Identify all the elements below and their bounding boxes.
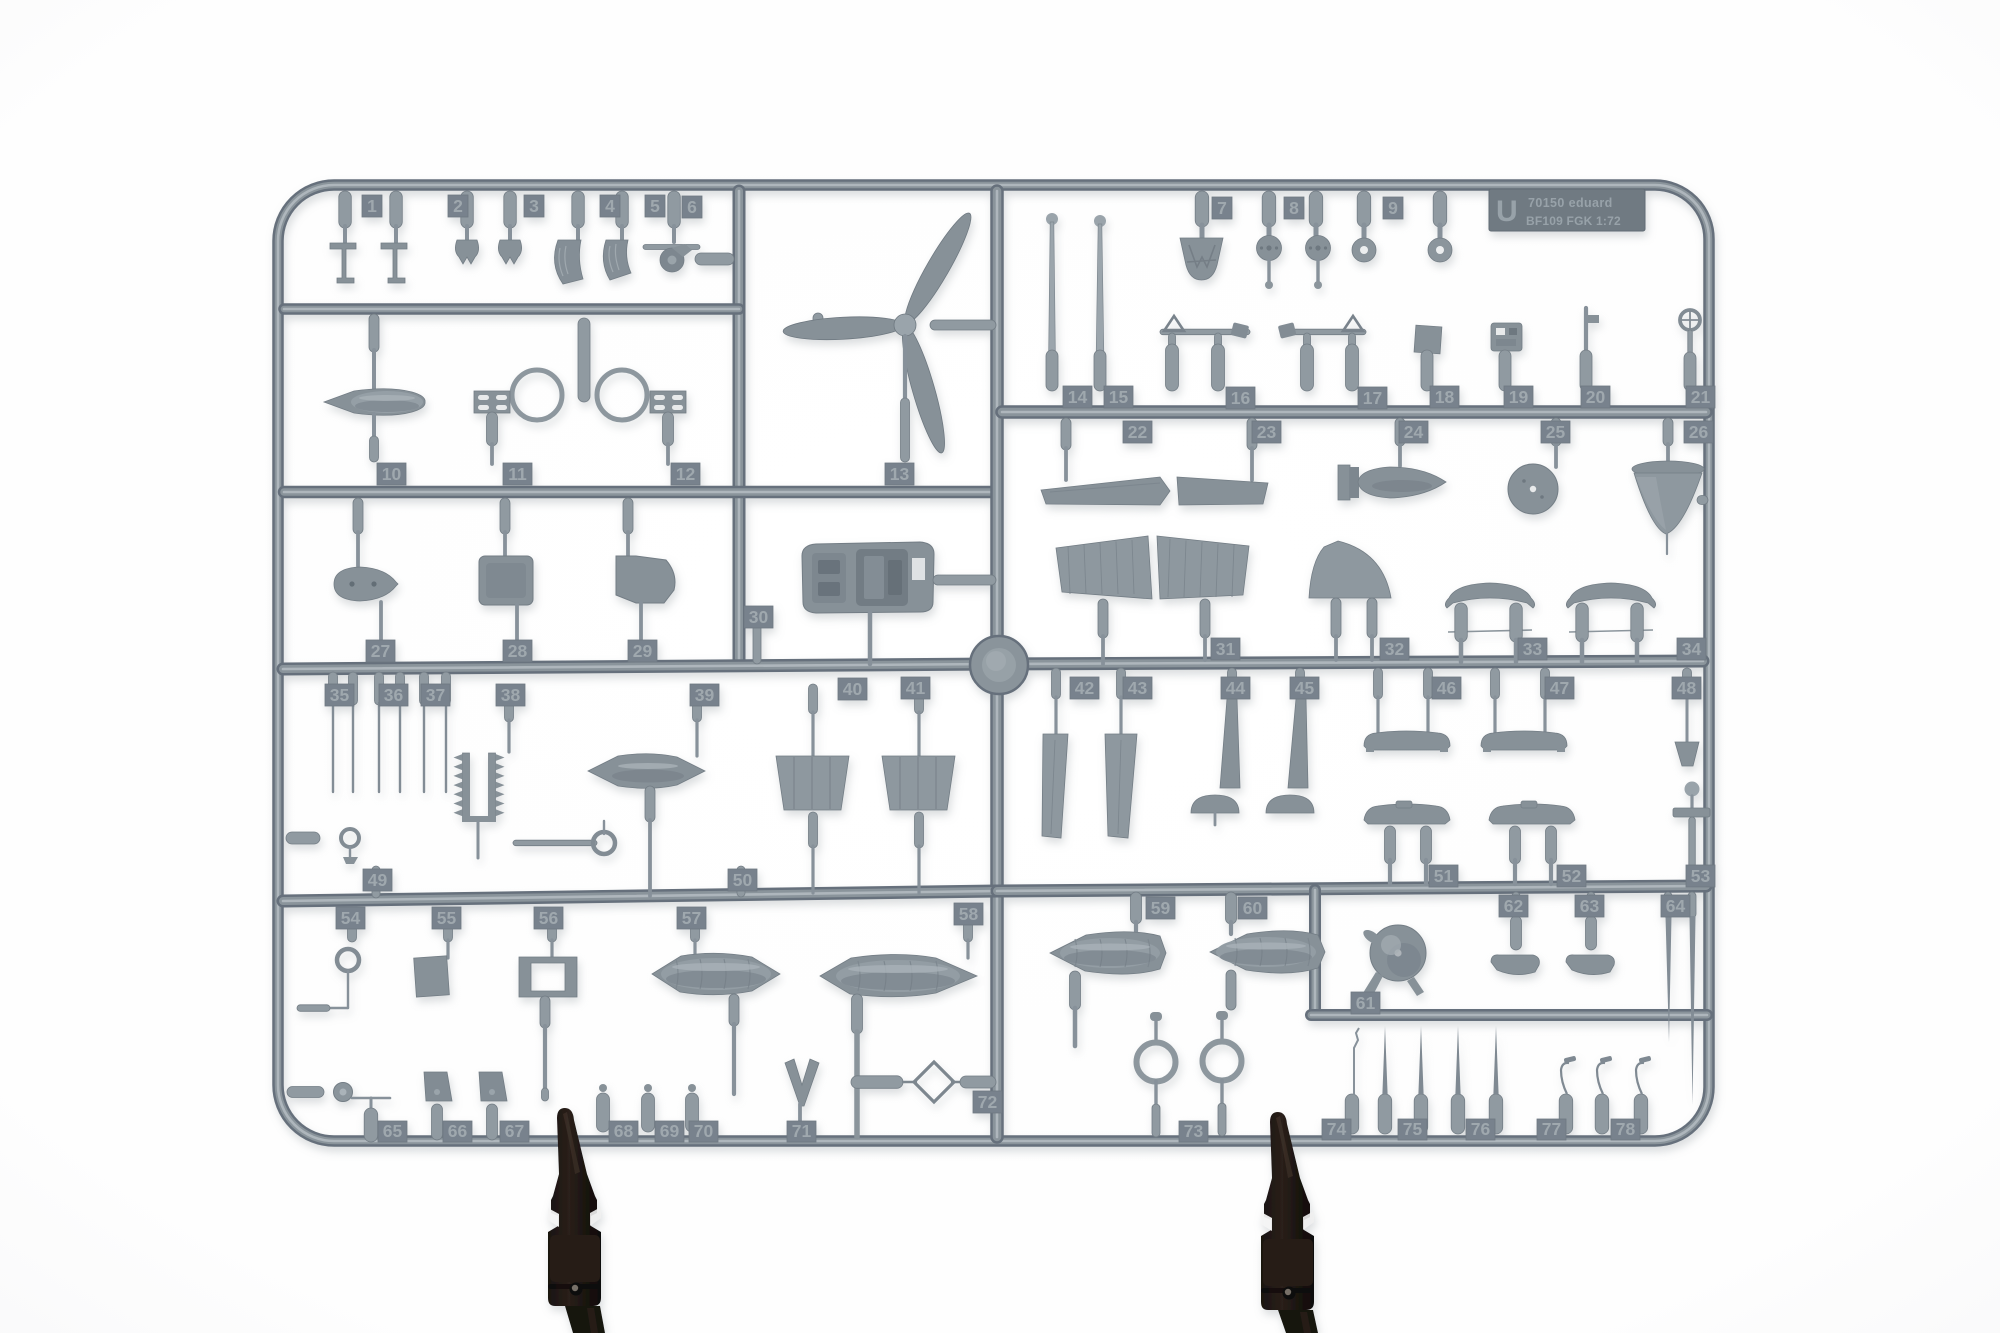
svg-text:15: 15	[1109, 387, 1129, 407]
svg-text:13: 13	[890, 464, 910, 484]
svg-text:12: 12	[676, 464, 696, 484]
svg-text:49: 49	[368, 870, 388, 890]
svg-text:24: 24	[1404, 422, 1424, 442]
svg-text:17: 17	[1363, 388, 1382, 408]
svg-text:BF109 FGK 1:72: BF109 FGK 1:72	[1526, 214, 1621, 228]
svg-text:36: 36	[384, 685, 404, 705]
svg-text:42: 42	[1075, 678, 1095, 698]
svg-text:27: 27	[371, 641, 390, 661]
svg-text:4: 4	[605, 196, 615, 216]
svg-text:59: 59	[1151, 898, 1171, 918]
svg-text:66: 66	[448, 1121, 468, 1141]
svg-text:35: 35	[330, 685, 350, 705]
svg-text:68: 68	[614, 1121, 634, 1141]
svg-text:22: 22	[1128, 422, 1148, 442]
svg-text:25: 25	[1546, 422, 1566, 442]
svg-text:31: 31	[1216, 639, 1236, 659]
svg-text:7: 7	[1217, 198, 1227, 218]
svg-text:10: 10	[382, 464, 402, 484]
svg-text:28: 28	[508, 641, 528, 661]
svg-text:26: 26	[1689, 422, 1709, 442]
svg-text:52: 52	[1562, 866, 1582, 886]
svg-text:70150 eduard: 70150 eduard	[1528, 196, 1613, 210]
svg-text:65: 65	[383, 1121, 403, 1141]
svg-text:54: 54	[341, 908, 361, 928]
svg-text:3: 3	[529, 196, 539, 216]
svg-text:61: 61	[1356, 993, 1376, 1013]
svg-text:9: 9	[1388, 198, 1398, 218]
svg-text:34: 34	[1682, 639, 1702, 659]
svg-text:6: 6	[687, 197, 697, 217]
svg-text:38: 38	[501, 685, 521, 705]
svg-text:18: 18	[1435, 387, 1455, 407]
svg-text:33: 33	[1523, 639, 1543, 659]
svg-text:69: 69	[660, 1121, 680, 1141]
svg-text:11: 11	[508, 464, 527, 484]
svg-text:78: 78	[1616, 1119, 1636, 1139]
svg-text:20: 20	[1586, 387, 1606, 407]
svg-text:67: 67	[505, 1121, 524, 1141]
svg-text:72: 72	[978, 1092, 998, 1112]
svg-text:77: 77	[1542, 1119, 1561, 1139]
svg-text:74: 74	[1327, 1119, 1347, 1139]
svg-text:32: 32	[1385, 639, 1405, 659]
svg-text:23: 23	[1257, 422, 1277, 442]
svg-text:53: 53	[1691, 866, 1711, 886]
svg-text:71: 71	[792, 1121, 812, 1141]
svg-text:62: 62	[1504, 896, 1524, 916]
svg-text:14: 14	[1068, 387, 1088, 407]
svg-text:21: 21	[1691, 387, 1711, 407]
svg-text:19: 19	[1509, 387, 1529, 407]
svg-text:2: 2	[453, 196, 463, 216]
svg-text:73: 73	[1184, 1121, 1204, 1141]
svg-text:76: 76	[1471, 1119, 1491, 1139]
svg-text:47: 47	[1550, 678, 1569, 698]
svg-text:70: 70	[694, 1121, 714, 1141]
svg-text:50: 50	[733, 870, 753, 890]
svg-text:55: 55	[437, 908, 457, 928]
svg-text:51: 51	[1434, 866, 1454, 886]
svg-text:75: 75	[1403, 1119, 1423, 1139]
svg-text:41: 41	[906, 678, 926, 698]
svg-text:30: 30	[749, 607, 769, 627]
svg-text:U: U	[1496, 195, 1518, 228]
svg-text:60: 60	[1243, 898, 1263, 918]
svg-text:8: 8	[1289, 198, 1299, 218]
svg-text:1: 1	[367, 196, 377, 216]
svg-text:57: 57	[682, 908, 701, 928]
svg-text:39: 39	[695, 685, 715, 705]
svg-text:63: 63	[1580, 896, 1600, 916]
svg-text:37: 37	[426, 685, 445, 705]
svg-text:5: 5	[650, 196, 660, 216]
svg-text:43: 43	[1128, 678, 1148, 698]
svg-text:16: 16	[1231, 388, 1251, 408]
svg-text:48: 48	[1677, 678, 1697, 698]
svg-text:44: 44	[1226, 678, 1246, 698]
svg-text:40: 40	[843, 679, 863, 699]
svg-text:58: 58	[959, 904, 979, 924]
svg-text:64: 64	[1666, 896, 1686, 916]
svg-text:29: 29	[633, 641, 653, 661]
svg-text:56: 56	[539, 908, 559, 928]
svg-text:45: 45	[1295, 678, 1315, 698]
svg-text:46: 46	[1437, 678, 1457, 698]
